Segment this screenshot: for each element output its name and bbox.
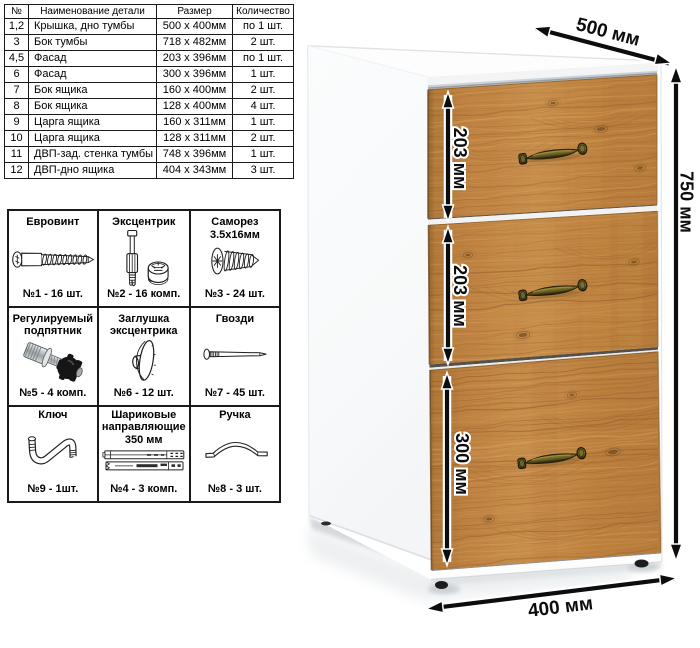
svg-text:203 мм: 203 мм (450, 128, 470, 190)
svg-text:750 мм: 750 мм (676, 171, 696, 233)
svg-text:300 мм: 300 мм (452, 433, 472, 495)
svg-text:203 мм: 203 мм (450, 265, 470, 327)
